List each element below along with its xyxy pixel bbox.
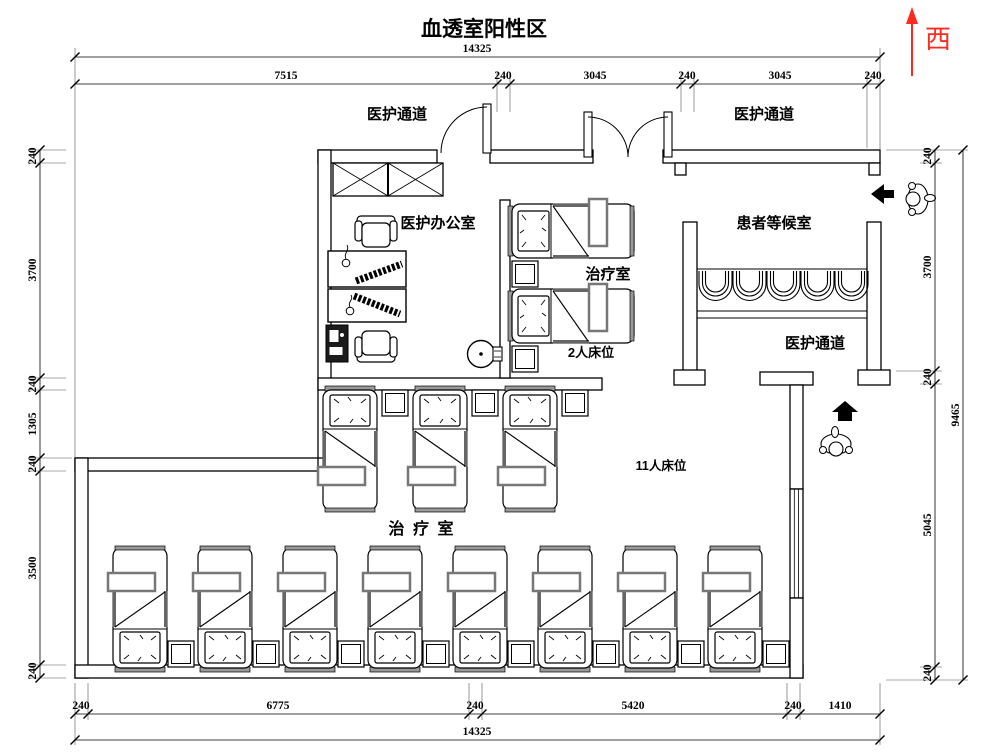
label-11-beds: 11人床位 [636,458,687,473]
dim-label: 240 [27,455,39,473]
waiting-chair-icon [733,271,766,301]
room-label-corridor-top-right: 医护通道 [734,105,794,123]
bedside-table-icon [678,641,704,667]
dim-label: 9465 [950,403,962,426]
wall-lower-north [75,458,318,471]
cabinet-icon [333,163,443,196]
wall-waiting-right-foot [858,370,890,385]
bed-icon [448,546,508,672]
dim-label: 1410 [829,700,852,712]
room-label-office: 医护办公室 [400,214,475,232]
room-label-corridor-top-left: 医护通道 [367,105,427,123]
wall-top-c [663,150,880,163]
wall-east-stem [790,385,803,489]
office-chair-icon [355,216,397,247]
dim-label: 240 [27,662,39,680]
bed-icon [318,386,378,512]
bed-icon [533,546,593,672]
dim-label: 14325 [463,726,492,738]
dim-label: 240 [494,70,512,82]
floor-plan-canvas: 西 [0,0,989,755]
dim-label: 1305 [27,412,39,435]
person-icon [906,183,936,216]
single-door-icon [441,104,491,153]
waiting-chair-icon [835,271,868,301]
bed-icon [108,546,168,672]
entry-arrow-west-icon [871,184,894,204]
dim-label: 3700 [27,258,39,281]
dim-label: 14325 [463,43,492,55]
bed-icon [278,546,338,672]
office-furniture [326,163,502,368]
room-label-treatment-large: 治 疗 室 [389,519,456,538]
room-label-treatment-small: 治疗室 [585,265,630,283]
printer-icon [326,325,348,362]
double-door-icon [584,112,672,157]
wall-lower-west [75,458,88,678]
page-title: 血透室阳性区 [421,17,547,41]
dim-label: 3700 [922,255,934,278]
window-frame [790,489,803,598]
wall-waiting-left-foot [674,370,705,385]
dim-label: 240 [27,375,39,393]
room-label-corridor-right: 医护通道 [785,334,845,352]
bedside-table-icon [508,641,534,667]
dim-label: 240 [922,664,934,682]
wall-tbar [760,372,813,385]
wall-east-lower [790,598,803,678]
floor-plan-svg: 西 [0,0,989,755]
doors [441,104,672,157]
dim-label: 240 [466,700,484,712]
bedside-table-icon [168,641,194,667]
bed-icon [498,386,558,512]
bed-icon [508,284,634,344]
dim-label: 240 [72,700,90,712]
waiting-chair-icon [767,271,800,301]
dim-label: 240 [922,147,934,165]
waiting-chair-icon [801,271,834,301]
sink-icon [468,341,503,368]
dim-label: 5045 [922,513,934,536]
bed-icon [508,199,634,259]
bed-icon [618,546,678,672]
bedside-table-icon [562,390,588,416]
wall-pier-right [869,163,880,175]
bedside-table-icon [253,641,279,667]
bedside-table-icon [512,346,538,372]
label-2-beds: 2人床位 [568,345,614,360]
compass-west-label: 西 [925,25,951,54]
dim-label: 240 [27,147,39,165]
bed-icon [363,546,423,672]
dim-label: 3045 [584,70,607,82]
person-icon [820,427,853,457]
bedside-table-icon [512,261,538,287]
bed-icon [703,546,763,672]
office-chair-icon [355,331,397,362]
wall-waiting-right [867,222,881,372]
flow-arrow-north-icon [832,401,858,421]
room-label-waiting: 患者等候室 [736,214,811,232]
compass-west-arrow-icon [906,7,918,76]
dim-label: 5420 [622,700,645,712]
wall-waiting-left [683,222,697,372]
bedside-table-icon [472,390,498,416]
bedside-table-icon [763,641,789,667]
waiting-room-chairs [697,269,868,318]
wall-pier-left [675,163,686,175]
middle-bed-row [318,386,588,512]
bedside-table-icon [382,390,408,416]
bed-icon [408,386,468,512]
bottom-bed-row [108,546,789,672]
wall-top-a [318,150,437,163]
bedside-table-icon [423,641,449,667]
dim-label: 240 [864,70,882,82]
bed-icon [193,546,253,672]
dim-label: 240 [922,368,934,386]
bedside-table-icon [338,641,364,667]
dim-label: 3500 [27,556,39,579]
waiting-chair-icon [699,271,732,301]
dim-label: 240 [784,700,802,712]
desk [328,289,406,322]
dim-label: 7515 [275,70,298,82]
dim-label: 240 [678,70,696,82]
wall-top-b [490,150,593,163]
dim-label: 3045 [769,70,792,82]
bedside-table-icon [593,641,619,667]
dim-label: 6775 [267,700,290,712]
